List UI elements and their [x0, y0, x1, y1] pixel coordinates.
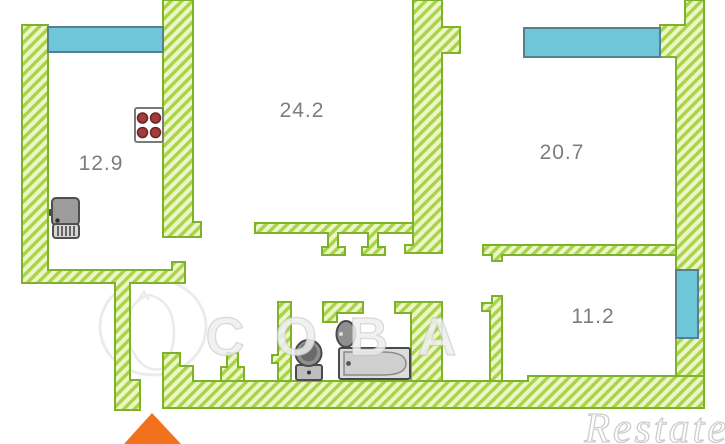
room-label-living-room: 24.2	[280, 99, 325, 123]
wall-hall-door-jamb	[221, 353, 244, 381]
toilet-icon	[296, 340, 323, 380]
washbasin-icon	[337, 321, 356, 347]
wall-wc-bath-divider	[323, 302, 363, 322]
small-room-window	[676, 270, 698, 338]
floor-plan: 12.9 24.2 20.7 11.2 СОВА Restate	[0, 0, 725, 444]
wall-middle-vertical	[405, 0, 460, 253]
stove-icon	[135, 108, 163, 142]
kitchen-sink-icon	[49, 198, 79, 238]
wall-smallroom-left	[482, 296, 502, 381]
bedroom-window	[524, 28, 660, 57]
room-label-kitchen: 12.9	[79, 152, 124, 176]
bathtub-icon	[339, 348, 410, 379]
entrance-arrow	[124, 413, 181, 444]
room-label-bedroom: 20.7	[540, 141, 585, 165]
kitchen-window	[48, 27, 163, 52]
wall-left-and-kitchen-bottom	[22, 25, 185, 410]
room-label-small-room: 11.2	[571, 305, 614, 329]
wall-wc-left	[272, 302, 291, 381]
wall-living-bottom-with-jambs	[255, 223, 413, 255]
floor-plan-drawing	[0, 0, 725, 444]
wall-bedroom-smallroom	[483, 245, 676, 261]
wall-kitchen-living	[163, 0, 201, 237]
